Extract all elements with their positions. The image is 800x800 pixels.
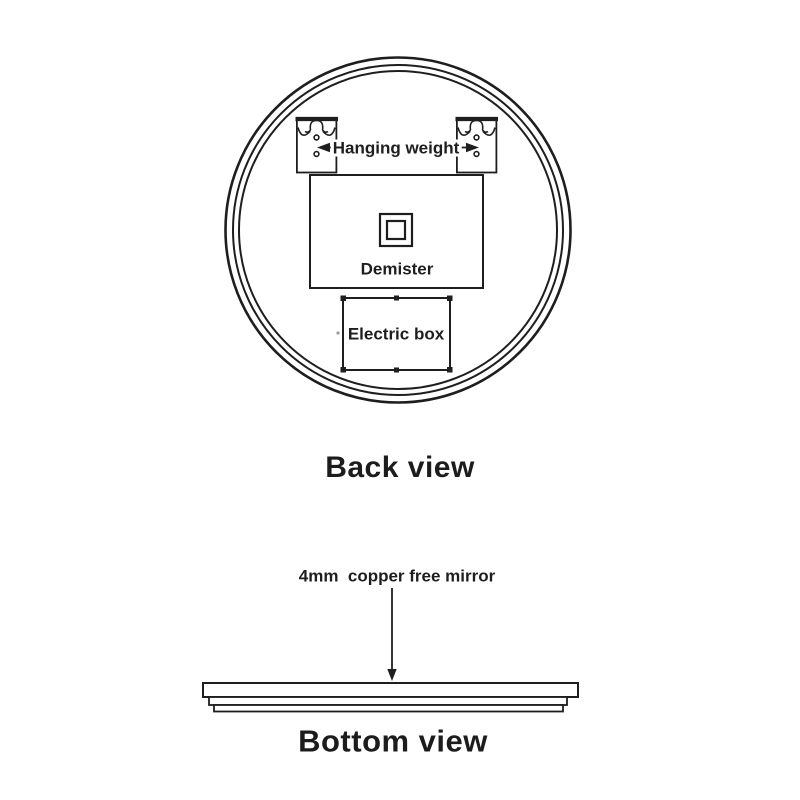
hanging-bracket-right (456, 118, 499, 173)
mirror-thickness-annotation: 4mm copper free mirror (297, 568, 498, 585)
hanging-weight-label: Hanging weight (331, 140, 462, 157)
backing-layer-1 (209, 697, 567, 705)
mirror-glass-layer (203, 683, 578, 697)
electric-box-label: Electric box (346, 326, 446, 343)
backing-layer-2 (214, 705, 563, 712)
bottom-view-title: Bottom view (298, 726, 488, 757)
mirror-profile (203, 683, 578, 712)
demister-label: Demister (359, 261, 436, 278)
back-view-title: Back view (325, 453, 475, 483)
technical-drawing (0, 0, 800, 800)
edge-tick (336, 331, 339, 334)
mirror-spec-drawing: Hanging weight Demister Electric box Bac… (0, 0, 800, 800)
down-arrow-icon (387, 588, 396, 681)
